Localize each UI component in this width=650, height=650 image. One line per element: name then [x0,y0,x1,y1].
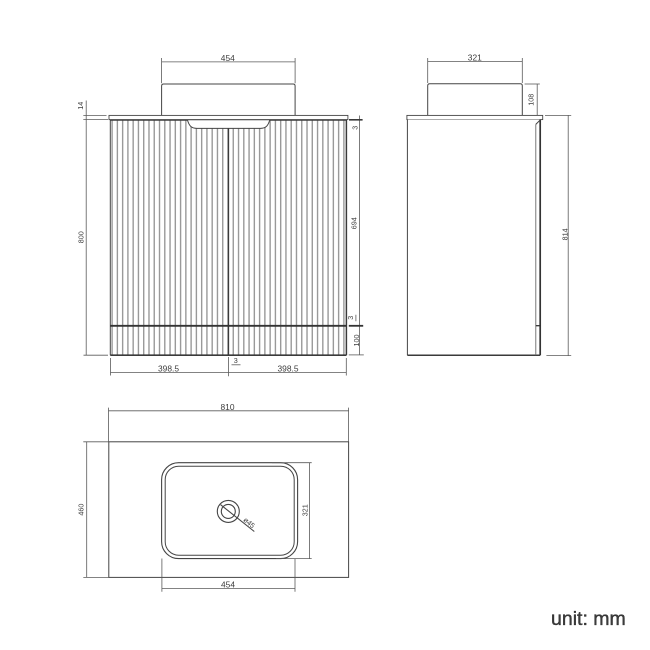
svg-text:108: 108 [526,94,535,106]
svg-text:100: 100 [352,335,361,347]
svg-text:321: 321 [301,504,310,516]
svg-text:398.5: 398.5 [158,363,179,373]
svg-text:unit: mm: unit: mm [551,608,626,630]
svg-text:460: 460 [76,504,85,516]
svg-text:800: 800 [76,231,85,243]
svg-text:14: 14 [76,102,85,110]
svg-text:454: 454 [221,53,235,63]
svg-text:3: 3 [234,356,238,365]
svg-text:810: 810 [221,402,235,412]
svg-text:3: 3 [346,316,355,320]
svg-text:454: 454 [221,579,235,589]
svg-text:694: 694 [350,217,359,229]
svg-text:814: 814 [560,228,569,240]
svg-text:398.5: 398.5 [278,363,299,373]
svg-text:3: 3 [351,126,360,130]
svg-text:321: 321 [468,53,482,63]
